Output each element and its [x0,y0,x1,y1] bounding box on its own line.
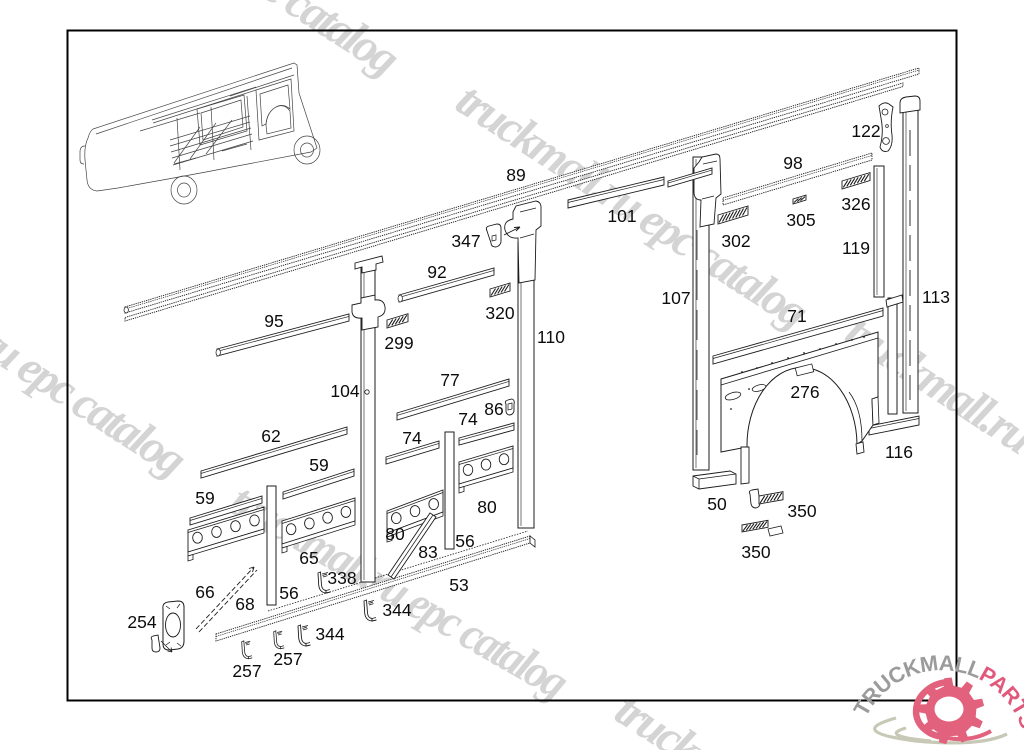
svg-text:86: 86 [484,399,503,419]
svg-text:98: 98 [783,153,802,173]
svg-text:62: 62 [261,426,280,446]
svg-text:56: 56 [279,583,298,603]
svg-text:257: 257 [232,661,261,681]
svg-text:107: 107 [661,288,690,308]
svg-text:92: 92 [427,262,446,282]
svg-text:77: 77 [440,370,459,390]
svg-text:350: 350 [741,542,770,562]
svg-text:110: 110 [537,327,565,347]
svg-text:276: 276 [790,382,819,402]
svg-text:68: 68 [235,594,254,614]
svg-text:95: 95 [264,311,283,331]
svg-text:71: 71 [787,306,806,326]
svg-text:104: 104 [330,381,359,401]
svg-text:74: 74 [402,428,422,448]
svg-text:338: 338 [327,568,356,588]
svg-text:89: 89 [506,165,525,185]
svg-text:65: 65 [299,548,318,568]
svg-text:53: 53 [449,575,468,595]
svg-text:326: 326 [841,194,870,214]
svg-text:66: 66 [195,582,214,602]
svg-text:80: 80 [477,497,497,517]
svg-text:350: 350 [787,501,816,521]
svg-text:122: 122 [851,121,880,141]
svg-text:305: 305 [786,210,815,230]
svg-text:116: 116 [885,442,913,462]
svg-text:254: 254 [127,612,156,632]
svg-text:302: 302 [721,231,750,251]
svg-text:83: 83 [418,542,437,562]
svg-text:257: 257 [273,649,302,669]
svg-text:80: 80 [385,524,405,544]
svg-text:56: 56 [455,531,474,551]
svg-text:59: 59 [195,488,214,508]
svg-text:113: 113 [922,287,950,307]
svg-text:344: 344 [315,624,344,644]
svg-text:299: 299 [384,333,413,353]
svg-text:74: 74 [458,409,478,429]
svg-text:320: 320 [485,303,514,323]
svg-text:50: 50 [707,494,727,514]
svg-text:119: 119 [842,238,870,258]
svg-text:347: 347 [451,231,480,251]
svg-text:101: 101 [607,206,636,226]
svg-text:59: 59 [309,455,328,475]
svg-text:344: 344 [382,600,411,620]
